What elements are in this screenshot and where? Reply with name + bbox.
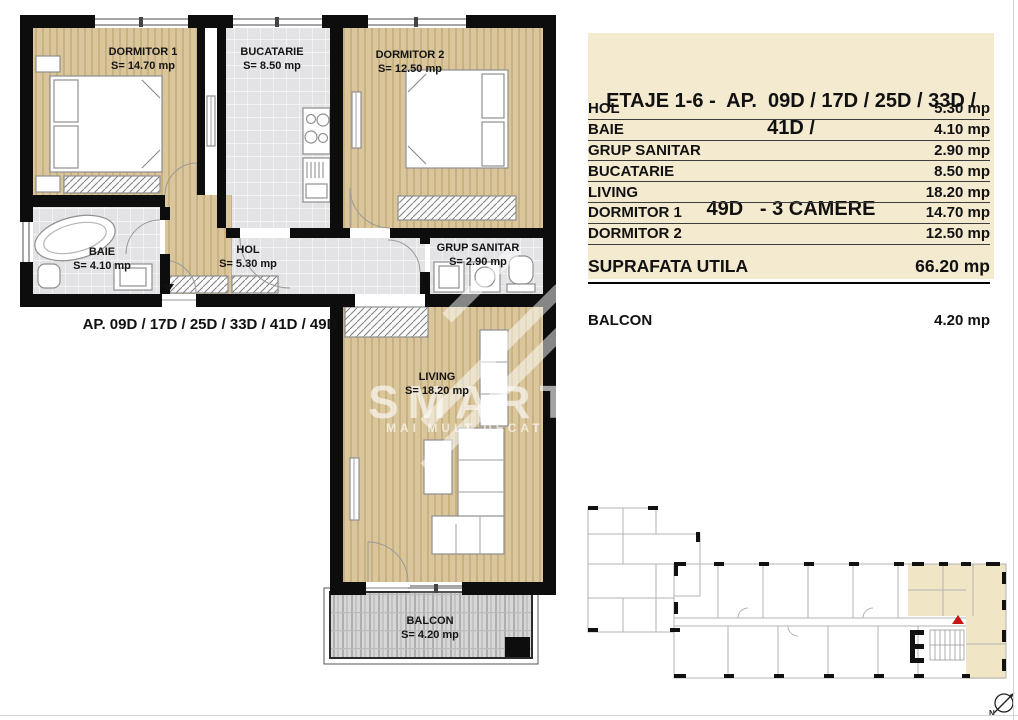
label-bucatarie-area: S= 8.50 mp xyxy=(243,60,301,72)
balcony-value: 4.20 mp xyxy=(934,312,990,329)
row-value: 5.30 mp xyxy=(934,100,990,117)
area-table: HOL 5.30 mp BAIE 4.10 mp GRUP SANITAR 2.… xyxy=(588,99,990,245)
label-baie-area: S= 4.10 mp xyxy=(73,260,131,272)
row-value: 12.50 mp xyxy=(926,225,990,242)
label-dormitor2-area: S= 12.50 mp xyxy=(378,63,442,75)
row-label: LIVING xyxy=(588,184,638,201)
floor-plan: SMART E MAI MULT DECAT DORMITOR 1 S= 14.… xyxy=(0,0,575,720)
label-hol-area: S= 5.30 mp xyxy=(219,258,277,270)
label-dormitor1-area: S= 14.70 mp xyxy=(111,60,175,72)
summary-label: SUPRAFATA UTILA xyxy=(588,256,748,277)
label-living-area: S= 18.20 mp xyxy=(405,385,469,397)
label-living-name: LIVING xyxy=(419,371,456,383)
table-row: DORMITOR 2 12.50 mp xyxy=(588,224,990,245)
label-balcon-area: S= 4.20 mp xyxy=(401,629,459,641)
label-grup-sanitar-area: S= 2.90 mp xyxy=(449,256,507,268)
page-border-right xyxy=(1013,0,1014,720)
table-row: HOL 5.30 mp xyxy=(588,99,990,120)
label-hol-name: HOL xyxy=(236,244,260,256)
label-dormitor1-name: DORMITOR 1 xyxy=(109,46,178,58)
row-label: BUCATARIE xyxy=(588,163,674,180)
row-value: 2.90 mp xyxy=(934,142,990,159)
row-value: 8.50 mp xyxy=(934,163,990,180)
row-label: DORMITOR 2 xyxy=(588,225,682,242)
unit-entry-marker-icon xyxy=(952,615,964,624)
summary-row: SUPRAFATA UTILA 66.20 mp xyxy=(588,256,990,284)
table-row: LIVING 18.20 mp xyxy=(588,182,990,203)
compass-label: N xyxy=(989,709,995,718)
row-value: 4.10 mp xyxy=(934,121,990,138)
row-value: 14.70 mp xyxy=(926,204,990,221)
row-label: HOL xyxy=(588,100,620,117)
brochure-page: SMART E MAI MULT DECAT DORMITOR 1 S= 14.… xyxy=(0,0,1018,720)
row-label: DORMITOR 1 xyxy=(588,204,682,221)
row-value: 18.20 mp xyxy=(926,184,990,201)
building-key-plan xyxy=(578,494,1014,694)
table-row: BUCATARIE 8.50 mp xyxy=(588,161,990,182)
label-grup-sanitar-name: GRUP SANITAR xyxy=(437,242,520,254)
balcony-label: BALCON xyxy=(588,312,652,329)
staircase xyxy=(930,630,964,660)
label-balcon-name: BALCON xyxy=(406,615,453,627)
balcony-row: BALCON 4.20 mp xyxy=(588,312,990,329)
page-border-bottom xyxy=(0,715,1018,716)
row-label: GRUP SANITAR xyxy=(588,142,701,159)
summary-value: 66.20 mp xyxy=(915,256,990,277)
label-baie-name: BAIE xyxy=(89,246,115,258)
label-bucatarie-name: BUCATARIE xyxy=(240,46,303,58)
table-row: BAIE 4.10 mp xyxy=(588,120,990,141)
watermark-tagline: MAI MULT DECAT xyxy=(386,421,544,435)
table-row: DORMITOR 1 14.70 mp xyxy=(588,203,990,224)
row-label: BAIE xyxy=(588,121,624,138)
apartment-caption: AP. 09D / 17D / 25D / 33D / 41D / 49D xyxy=(83,316,338,333)
table-row: GRUP SANITAR 2.90 mp xyxy=(588,141,990,162)
label-dormitor2-name: DORMITOR 2 xyxy=(376,49,445,61)
